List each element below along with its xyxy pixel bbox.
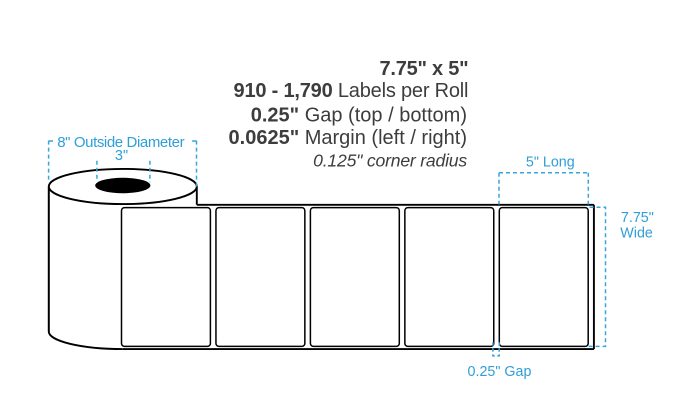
svg-text:0.25" Gap: 0.25" Gap [468,364,532,380]
svg-text:5" Long: 5" Long [526,155,575,171]
svg-text:7.75": 7.75" [621,210,654,226]
svg-text:Wide: Wide [620,226,653,242]
svg-text:910 - 1,790 Labels per Roll: 910 - 1,790 Labels per Roll [234,80,469,102]
svg-text:7.75" x 5": 7.75" x 5" [380,58,469,80]
svg-text:3": 3" [115,148,128,164]
svg-text:0.0625" Margin (left / right): 0.0625" Margin (left / right) [229,127,467,149]
svg-text:0.125" corner radius: 0.125" corner radius [313,151,467,171]
svg-text:0.25" Gap (top / bottom): 0.25" Gap (top / bottom) [251,105,467,127]
